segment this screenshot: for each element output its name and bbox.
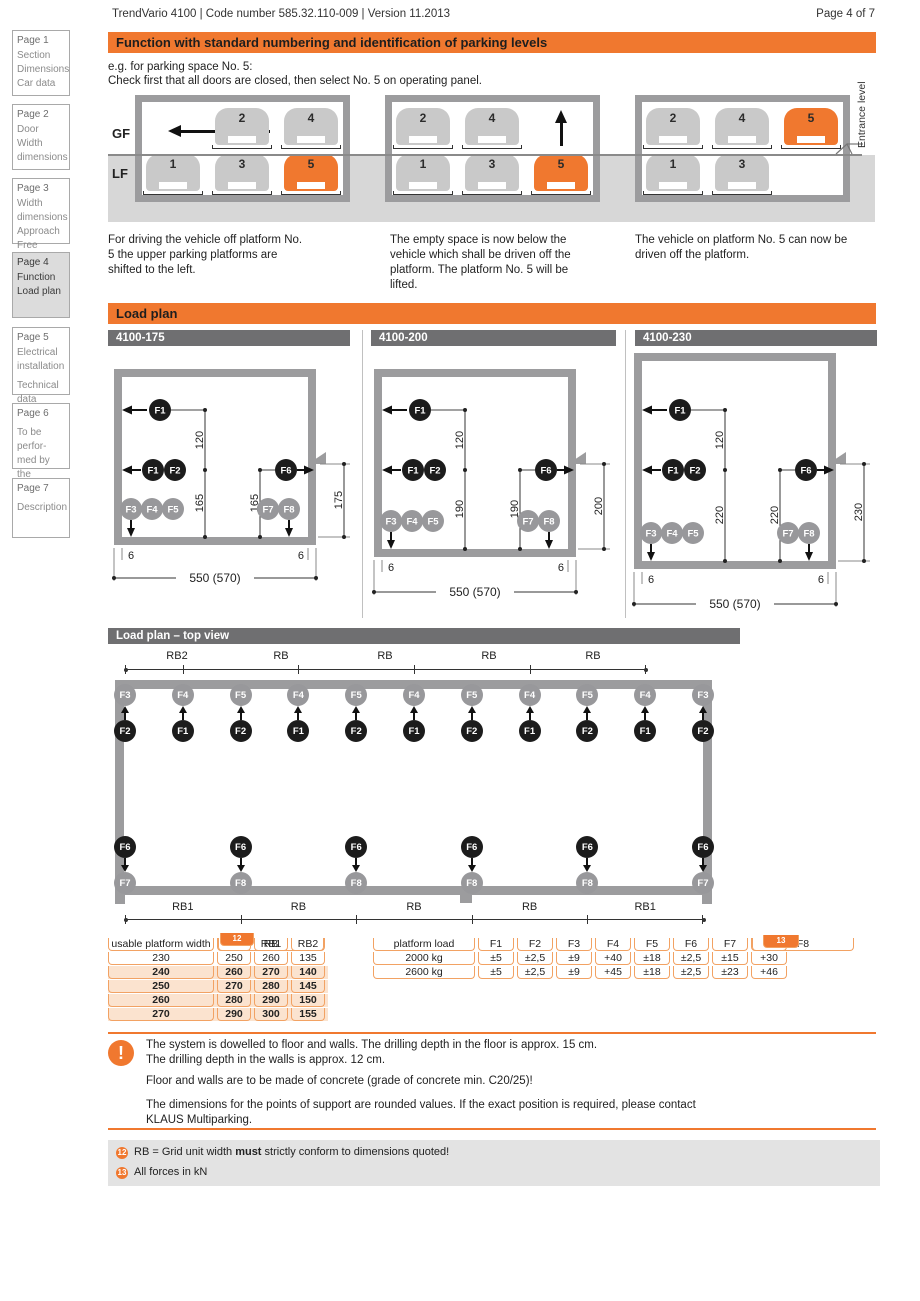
force-point-gray: F4	[172, 684, 194, 706]
force-point-black: F1	[634, 720, 656, 742]
force-point-black: F2	[230, 720, 252, 742]
platform-line	[212, 191, 272, 195]
arrow-up-icon	[468, 706, 476, 720]
platform-line	[281, 191, 341, 195]
car-1: 1	[146, 154, 200, 191]
platform-line	[281, 145, 341, 149]
arrow-up-icon	[410, 706, 418, 720]
force-point-black: F2	[461, 720, 483, 742]
caption-2: The empty space is now below the vehicle…	[390, 233, 595, 293]
car-4: 4	[284, 108, 338, 145]
platform-line	[143, 191, 203, 195]
platform-line	[712, 145, 772, 149]
svg-text:550 (570): 550 (570)	[709, 597, 760, 611]
svg-text:220: 220	[714, 506, 726, 524]
dim-label: RB	[229, 650, 333, 662]
lf-label: LF	[112, 166, 128, 181]
force-column: F6 F8	[230, 836, 252, 894]
force-column: F4 F1	[287, 684, 309, 742]
table-header-row: platform load F1 F2 F3 F4 F5 F6 F7 F813	[373, 938, 790, 951]
svg-text:F3: F3	[125, 505, 136, 516]
footnote-badge-13: 13	[763, 935, 799, 948]
section-title-function: Function with standard numbering and ide…	[108, 32, 876, 53]
car-2: 2	[215, 108, 269, 145]
arrow-up-icon	[179, 706, 187, 720]
svg-text:165: 165	[194, 494, 206, 512]
arrow-down-icon	[121, 858, 129, 872]
divider-rule	[108, 1032, 876, 1034]
force-point-black: F2	[345, 720, 367, 742]
force-column: F6 F8	[461, 836, 483, 894]
platform-line	[462, 191, 522, 195]
svg-text:F2: F2	[169, 466, 180, 477]
panel-title-4100-175: 4100-175	[108, 330, 350, 346]
force-column: F6 F8	[576, 836, 598, 894]
car-1: 1	[396, 154, 450, 191]
arrow-up-icon	[237, 706, 245, 720]
panel-title-4100-230: 4100-230	[635, 330, 877, 346]
force-point-gray: F8	[461, 872, 483, 894]
table-row: 250270 280145	[108, 980, 328, 993]
force-column: F4 F1	[519, 684, 541, 742]
topview-top-forces: F3 F2 F4 F1 F5 F2 F4	[114, 684, 714, 742]
svg-text:F4: F4	[146, 505, 158, 516]
platform-line	[781, 145, 841, 149]
sidebar-item-page2[interactable]: Page 2 Door Width dimensions	[12, 104, 70, 170]
document-page: TrendVario 4100 | Code number 585.32.110…	[0, 0, 920, 1301]
arrow-up-icon	[583, 706, 591, 720]
force-column: F4 F1	[172, 684, 194, 742]
force-point-gray: F8	[576, 872, 598, 894]
caption-3: The vehicle on platform No. 5 can now be…	[635, 233, 850, 263]
ground-line	[108, 154, 862, 156]
entrance-level-label: Entrance level	[856, 60, 868, 148]
table-row: 2600 kg±5 ±2,5±9 +45±18 ±2,5±23 +46	[373, 966, 790, 979]
footnote-13: 13 All forces in kN	[116, 1166, 872, 1178]
car-2: 2	[646, 108, 700, 145]
dim-label: RB	[333, 650, 437, 662]
svg-text:F8: F8	[283, 505, 294, 516]
force-point-gray: F7	[692, 872, 714, 894]
car-5-highlighted: 5	[534, 154, 588, 191]
loadplan-diagram-4100-200: 120 190 190 F1 F1 F2 F6 F3 F4 F5 F7 F8 2…	[368, 352, 618, 606]
force-point-gray: F5	[576, 684, 598, 706]
force-column: F6 F7	[692, 836, 714, 894]
platform-line	[462, 145, 522, 149]
svg-text:F7: F7	[522, 517, 533, 528]
caption-1: For driving the vehicle off platform No.…	[108, 233, 308, 278]
car-4: 4	[465, 108, 519, 145]
sidebar-item-page4-active[interactable]: Page 4 Function Load plan	[12, 252, 70, 318]
force-column: F3 F2	[692, 684, 714, 742]
svg-text:F1: F1	[154, 406, 166, 417]
car-5-highlighted: 5	[784, 108, 838, 145]
svg-text:F2: F2	[429, 466, 440, 477]
dim-label: RB	[356, 901, 472, 913]
car-2: 2	[396, 108, 450, 145]
table-header-row: usable platform width RB12 RB1 RB2	[108, 938, 328, 951]
force-point-black: F6	[230, 836, 252, 858]
topview-dims-top: RB2RBRBRBRB	[125, 650, 645, 662]
dim-label: RB	[541, 650, 645, 662]
svg-text:550 (570): 550 (570)	[449, 585, 500, 599]
footnote-badge-13: 13	[116, 1167, 128, 1179]
dim-label: RB	[241, 901, 357, 913]
force-point-gray: F3	[114, 684, 136, 706]
svg-text:F8: F8	[543, 517, 554, 528]
force-point-gray: F7	[114, 872, 136, 894]
force-column: F5 F2	[576, 684, 598, 742]
force-point-black: F1	[287, 720, 309, 742]
svg-text:F6: F6	[800, 466, 811, 477]
svg-text:F1: F1	[674, 406, 686, 417]
loadplan-diagram-4100-175: 120 165 165 F1 F1 F2 F6 F3 F4 F5 F7 F8 1…	[108, 352, 358, 592]
svg-text:120: 120	[194, 431, 206, 449]
footnote-12: 12 RB = Grid unit width must strictly co…	[116, 1146, 872, 1158]
dim-label: RB2	[125, 650, 229, 662]
section-title-loadplan: Load plan	[108, 303, 876, 324]
arrow-up-icon	[699, 706, 707, 720]
svg-text:6: 6	[128, 550, 134, 562]
svg-text:F6: F6	[280, 466, 291, 477]
note-paragraph-3: The dimensions for the points of support…	[146, 1098, 846, 1128]
arrow-up-icon	[526, 706, 534, 720]
svg-text:F1: F1	[407, 466, 419, 477]
platform-line	[393, 145, 453, 149]
svg-text:F1: F1	[667, 466, 679, 477]
note-paragraph-1: The system is dowelled to floor and wall…	[146, 1038, 846, 1068]
footnote-badge-12: 12	[116, 1147, 128, 1159]
section-title-topview: Load plan – top view	[108, 628, 740, 644]
force-column: F5 F2	[230, 684, 252, 742]
panel-title-4100-200: 4100-200	[371, 330, 616, 346]
force-point-black: F2	[114, 720, 136, 742]
force-point-black: F6	[692, 836, 714, 858]
arrow-down-icon	[583, 858, 591, 872]
table-row: 230250 260135	[108, 952, 328, 965]
panel-divider	[625, 330, 626, 618]
svg-text:6: 6	[818, 574, 824, 586]
force-point-gray: F8	[345, 872, 367, 894]
svg-text:175: 175	[333, 491, 345, 509]
dim-label: RB1	[125, 901, 241, 913]
svg-text:6: 6	[298, 550, 304, 562]
svg-text:6: 6	[388, 562, 394, 574]
force-point-gray: F8	[230, 872, 252, 894]
svg-text:F6: F6	[540, 466, 551, 477]
svg-text:F5: F5	[427, 517, 439, 528]
force-point-black: F6	[461, 836, 483, 858]
topview-dimline-top	[125, 669, 645, 670]
force-column: F6 F7	[114, 836, 136, 894]
sidebar-item-page1[interactable]: Page 1 Section Dimensions Car data	[12, 30, 70, 96]
arrow-up-icon	[121, 706, 129, 720]
force-point-gray: F4	[634, 684, 656, 706]
gf-label: GF	[112, 126, 130, 141]
svg-text:F8: F8	[803, 529, 814, 540]
note-paragraph-2: Floor and walls are to be made of concre…	[146, 1074, 846, 1089]
force-point-black: F2	[692, 720, 714, 742]
document-header: TrendVario 4100 | Code number 585.32.110…	[112, 8, 450, 20]
page-number: Page 4 of 7	[816, 8, 875, 20]
footnote-badge-12: 12	[220, 933, 254, 946]
platform-load-table: platform load F1 F2 F3 F4 F5 F6 F7 F813 …	[373, 938, 790, 980]
panel-divider	[362, 330, 363, 618]
intro-line2: Check first that all doors are closed, t…	[108, 75, 482, 87]
force-point-gray: F5	[345, 684, 367, 706]
svg-text:F2: F2	[689, 466, 700, 477]
car-4: 4	[715, 108, 769, 145]
force-column: F5 F2	[461, 684, 483, 742]
topview-bottom-forces: F6 F7 F6 F8 F6 F8 F6	[114, 836, 714, 894]
force-point-gray: F5	[461, 684, 483, 706]
footnotes-block: 12 RB = Grid unit width must strictly co…	[108, 1140, 880, 1186]
svg-text:F1: F1	[147, 466, 159, 477]
svg-text:230: 230	[853, 503, 865, 521]
sidebar-item-page6[interactable]: Page 6 To be perfor- med by the customer	[12, 403, 70, 469]
force-column: F6 F8	[345, 836, 367, 894]
arrow-down-icon	[352, 858, 360, 872]
svg-text:F1: F1	[414, 406, 426, 417]
topview-dimline-bottom	[125, 919, 703, 920]
svg-text:190: 190	[454, 500, 466, 518]
car-3: 3	[465, 154, 519, 191]
arrow-up-shaft	[560, 122, 563, 146]
svg-text:F5: F5	[687, 529, 699, 540]
table-body: 2000 kg±5 ±2,5±9 +40±18 ±2,5±15 +30 2600…	[373, 952, 790, 979]
loadplan-diagram-4100-230: 120 220 220 F1 F1 F2 F6 F3 F4 F5 F7 F8 2…	[628, 352, 878, 618]
svg-text:200: 200	[593, 497, 605, 515]
svg-text:120: 120	[454, 431, 466, 449]
force-point-gray: F4	[287, 684, 309, 706]
force-point-gray: F3	[692, 684, 714, 706]
svg-text:120: 120	[714, 431, 726, 449]
topview-diagram: RB2RBRBRBRB F3 F2 F4 F1	[108, 646, 748, 936]
car-3: 3	[215, 154, 269, 191]
force-column: F5 F2	[345, 684, 367, 742]
car-3: 3	[715, 154, 769, 191]
svg-text:F3: F3	[645, 529, 656, 540]
arrow-up-icon	[352, 706, 360, 720]
table-row: 240260 270140	[108, 966, 328, 979]
table-row: 260280 290150	[108, 994, 328, 1007]
platform-line	[643, 145, 703, 149]
svg-text:220: 220	[769, 506, 781, 524]
sidebar-item-page5[interactable]: Page 5 Electrical installation Technical…	[12, 327, 70, 395]
svg-text:F7: F7	[262, 505, 273, 516]
force-point-gray: F4	[519, 684, 541, 706]
svg-text:F7: F7	[782, 529, 793, 540]
dim-label: RB1	[587, 901, 703, 913]
table-row: 270290 300155	[108, 1008, 328, 1021]
force-point-black: F1	[172, 720, 194, 742]
arrow-up-icon	[641, 706, 649, 720]
force-point-black: F1	[403, 720, 425, 742]
force-point-gray: F5	[230, 684, 252, 706]
dim-label: RB	[472, 901, 588, 913]
topview-dims-bottom: RB1RBRBRBRB1	[125, 901, 703, 913]
table-body: 230250 260135 240260 270140 250270 28014…	[108, 952, 328, 1021]
function-diagram-3: 2 4 5 1 3	[635, 95, 850, 202]
svg-text:6: 6	[648, 574, 654, 586]
platform-line	[531, 191, 591, 195]
arrow-up-icon	[294, 706, 302, 720]
force-point-gray: F4	[403, 684, 425, 706]
force-point-black: F1	[519, 720, 541, 742]
force-point-black: F6	[345, 836, 367, 858]
svg-text:6: 6	[558, 562, 564, 574]
svg-text:F4: F4	[666, 529, 678, 540]
platform-line	[393, 191, 453, 195]
intro-line1: e.g. for parking space No. 5:	[108, 61, 252, 73]
function-diagram-2: 2 4 1 3 5	[385, 95, 600, 202]
force-column: F3 F2	[114, 684, 136, 742]
dim-label: RB	[437, 650, 541, 662]
svg-text:F4: F4	[406, 517, 418, 528]
warning-icon: !	[108, 1040, 134, 1066]
force-point-black: F6	[576, 836, 598, 858]
sidebar-item-page3[interactable]: Page 3 Width dimensions Approach Free sp…	[12, 178, 70, 244]
svg-text:F5: F5	[167, 505, 179, 516]
platform-line	[212, 145, 272, 149]
svg-text:F3: F3	[385, 517, 396, 528]
platform-line	[643, 191, 703, 195]
force-column: F4 F1	[403, 684, 425, 742]
function-diagram-1: 2 4 1 3 5	[135, 95, 350, 202]
platform-width-table: usable platform width RB12 RB1 RB2 23025…	[108, 938, 328, 1022]
table-row: 2000 kg±5 ±2,5±9 +40±18 ±2,5±15 +30	[373, 952, 790, 965]
platform-line	[712, 191, 772, 195]
car-5-highlighted: 5	[284, 154, 338, 191]
wall-post	[115, 895, 125, 904]
divider-rule	[108, 1128, 876, 1130]
arrow-down-icon	[699, 858, 707, 872]
arrow-down-icon	[468, 858, 476, 872]
sidebar-item-page7[interactable]: Page 7 Description	[12, 478, 70, 538]
force-column: F4 F1	[634, 684, 656, 742]
wall-post	[702, 895, 712, 904]
force-point-black: F6	[114, 836, 136, 858]
force-point-black: F2	[576, 720, 598, 742]
car-1: 1	[646, 154, 700, 191]
svg-text:550 (570): 550 (570)	[189, 571, 240, 585]
arrow-down-icon	[237, 858, 245, 872]
